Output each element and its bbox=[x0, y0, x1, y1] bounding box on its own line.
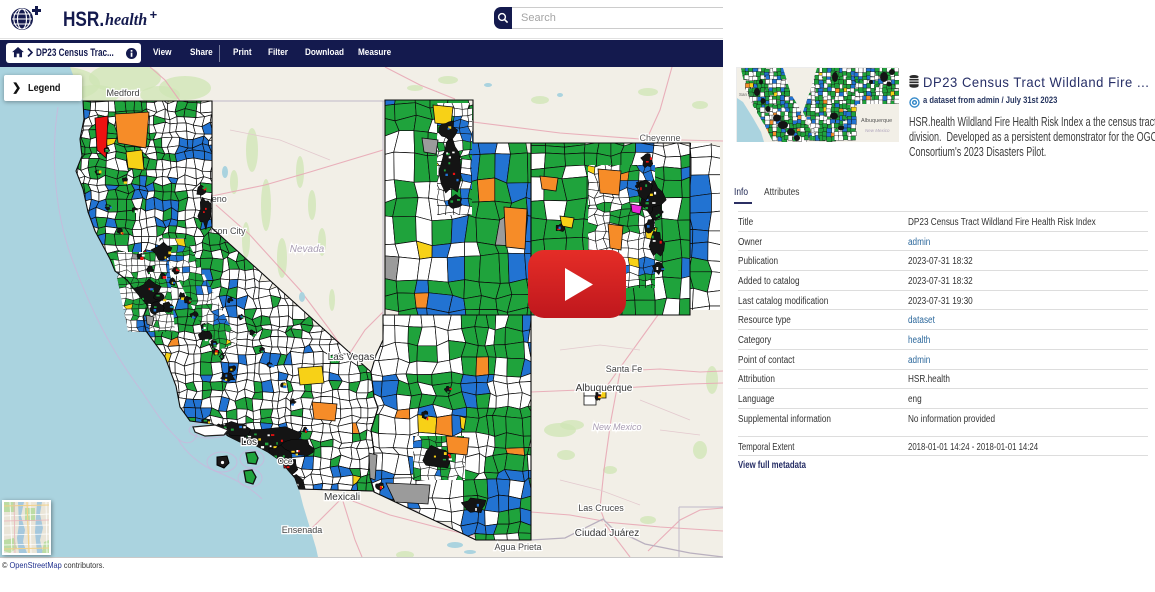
svg-text:Las Cruces: Las Cruces bbox=[578, 503, 624, 513]
svg-text:Ciudad Juárez: Ciudad Juárez bbox=[575, 528, 639, 539]
svg-text:Santa Fe: Santa Fe bbox=[606, 364, 643, 374]
svg-text:Oce: Oce bbox=[278, 457, 293, 466]
svg-text:San Jo: San Jo bbox=[739, 92, 754, 97]
svg-text:Cheyenne: Cheyenne bbox=[639, 133, 680, 143]
svg-text:New Mexico: New Mexico bbox=[592, 422, 641, 432]
svg-text:Agua Prieta: Agua Prieta bbox=[494, 542, 541, 552]
svg-text:Ensenada: Ensenada bbox=[282, 525, 323, 535]
svg-text:Los: Los bbox=[241, 437, 257, 448]
svg-text:Mexicali: Mexicali bbox=[324, 492, 360, 503]
svg-text:Albuquerque: Albuquerque bbox=[861, 118, 892, 124]
svg-text:Las Vegas: Las Vegas bbox=[328, 352, 375, 363]
svg-text:New Mexico: New Mexico bbox=[865, 128, 890, 133]
svg-text:Albuquerque: Albuquerque bbox=[576, 383, 633, 394]
svg-text:Nevada: Nevada bbox=[290, 244, 325, 255]
svg-text:Medford: Medford bbox=[106, 88, 139, 98]
